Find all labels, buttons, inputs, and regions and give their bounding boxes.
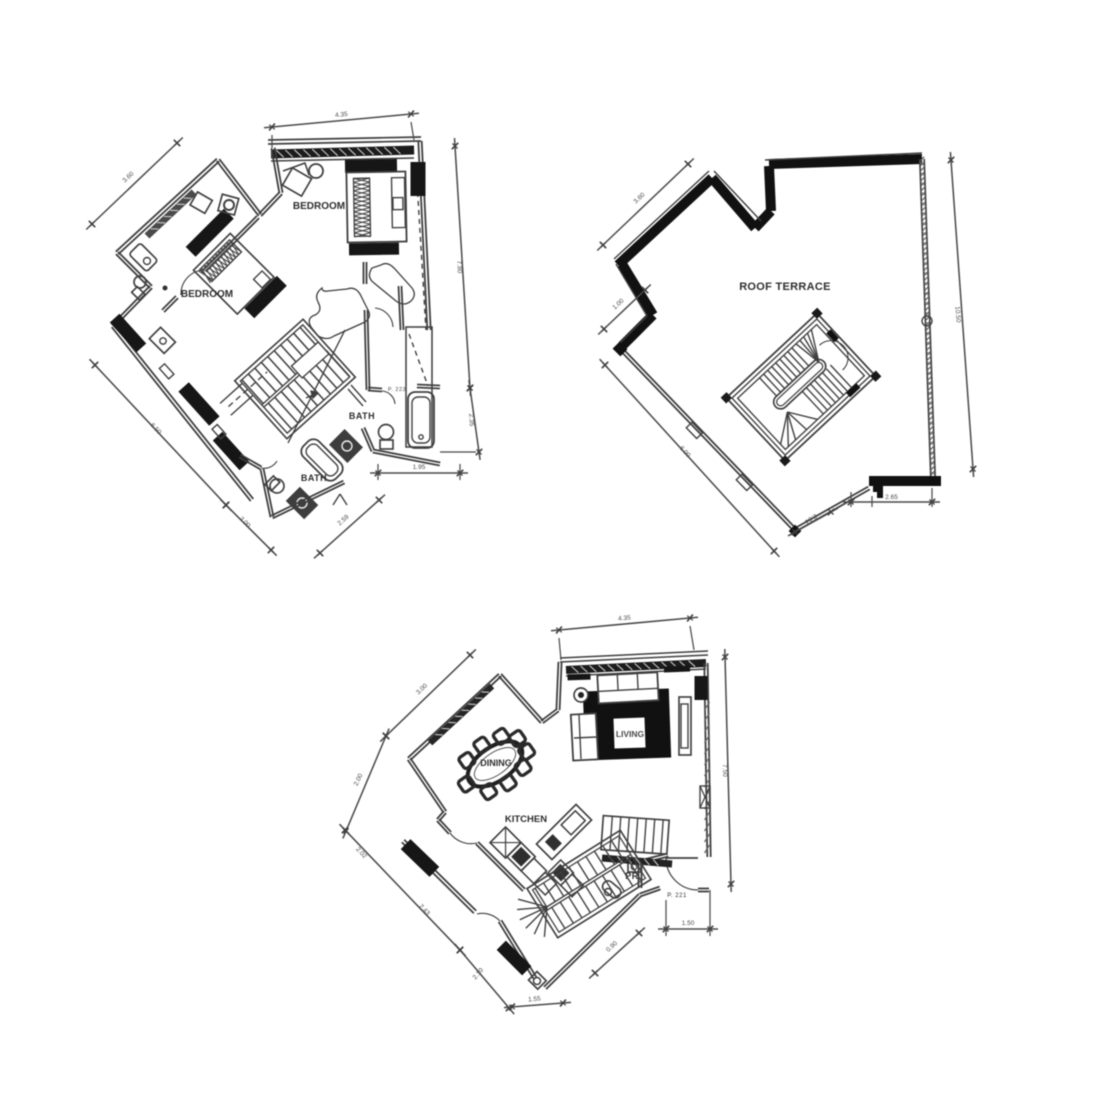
svg-text:7.50: 7.50: [721, 764, 728, 777]
svg-text:ROOF TERRACE: ROOF TERRACE: [739, 281, 831, 293]
svg-text:BEDROOM: BEDROOM: [293, 201, 345, 212]
svg-text:BATH: BATH: [349, 411, 375, 421]
svg-text:4.35: 4.35: [335, 111, 349, 119]
svg-text:KITCHEN: KITCHEN: [505, 814, 547, 825]
svg-text:4.35: 4.35: [618, 614, 632, 622]
svg-text:2.65: 2.65: [885, 494, 898, 501]
svg-text:1.55: 1.55: [528, 995, 542, 1003]
svg-text:BEDROOM: BEDROOM: [181, 289, 233, 300]
svg-text:LIVING: LIVING: [616, 729, 645, 739]
svg-text:1.95: 1.95: [413, 464, 426, 471]
svg-text:10.50: 10.50: [953, 306, 961, 323]
svg-text:DINING: DINING: [480, 758, 512, 768]
svg-text:7.80: 7.80: [455, 260, 463, 273]
svg-text:1.50: 1.50: [682, 920, 695, 927]
svg-text:P. 221: P. 221: [667, 893, 687, 899]
svg-text:BATH: BATH: [301, 473, 327, 483]
svg-text:2.35: 2.35: [467, 413, 475, 426]
svg-text:P. 223: P. 223: [388, 387, 406, 393]
